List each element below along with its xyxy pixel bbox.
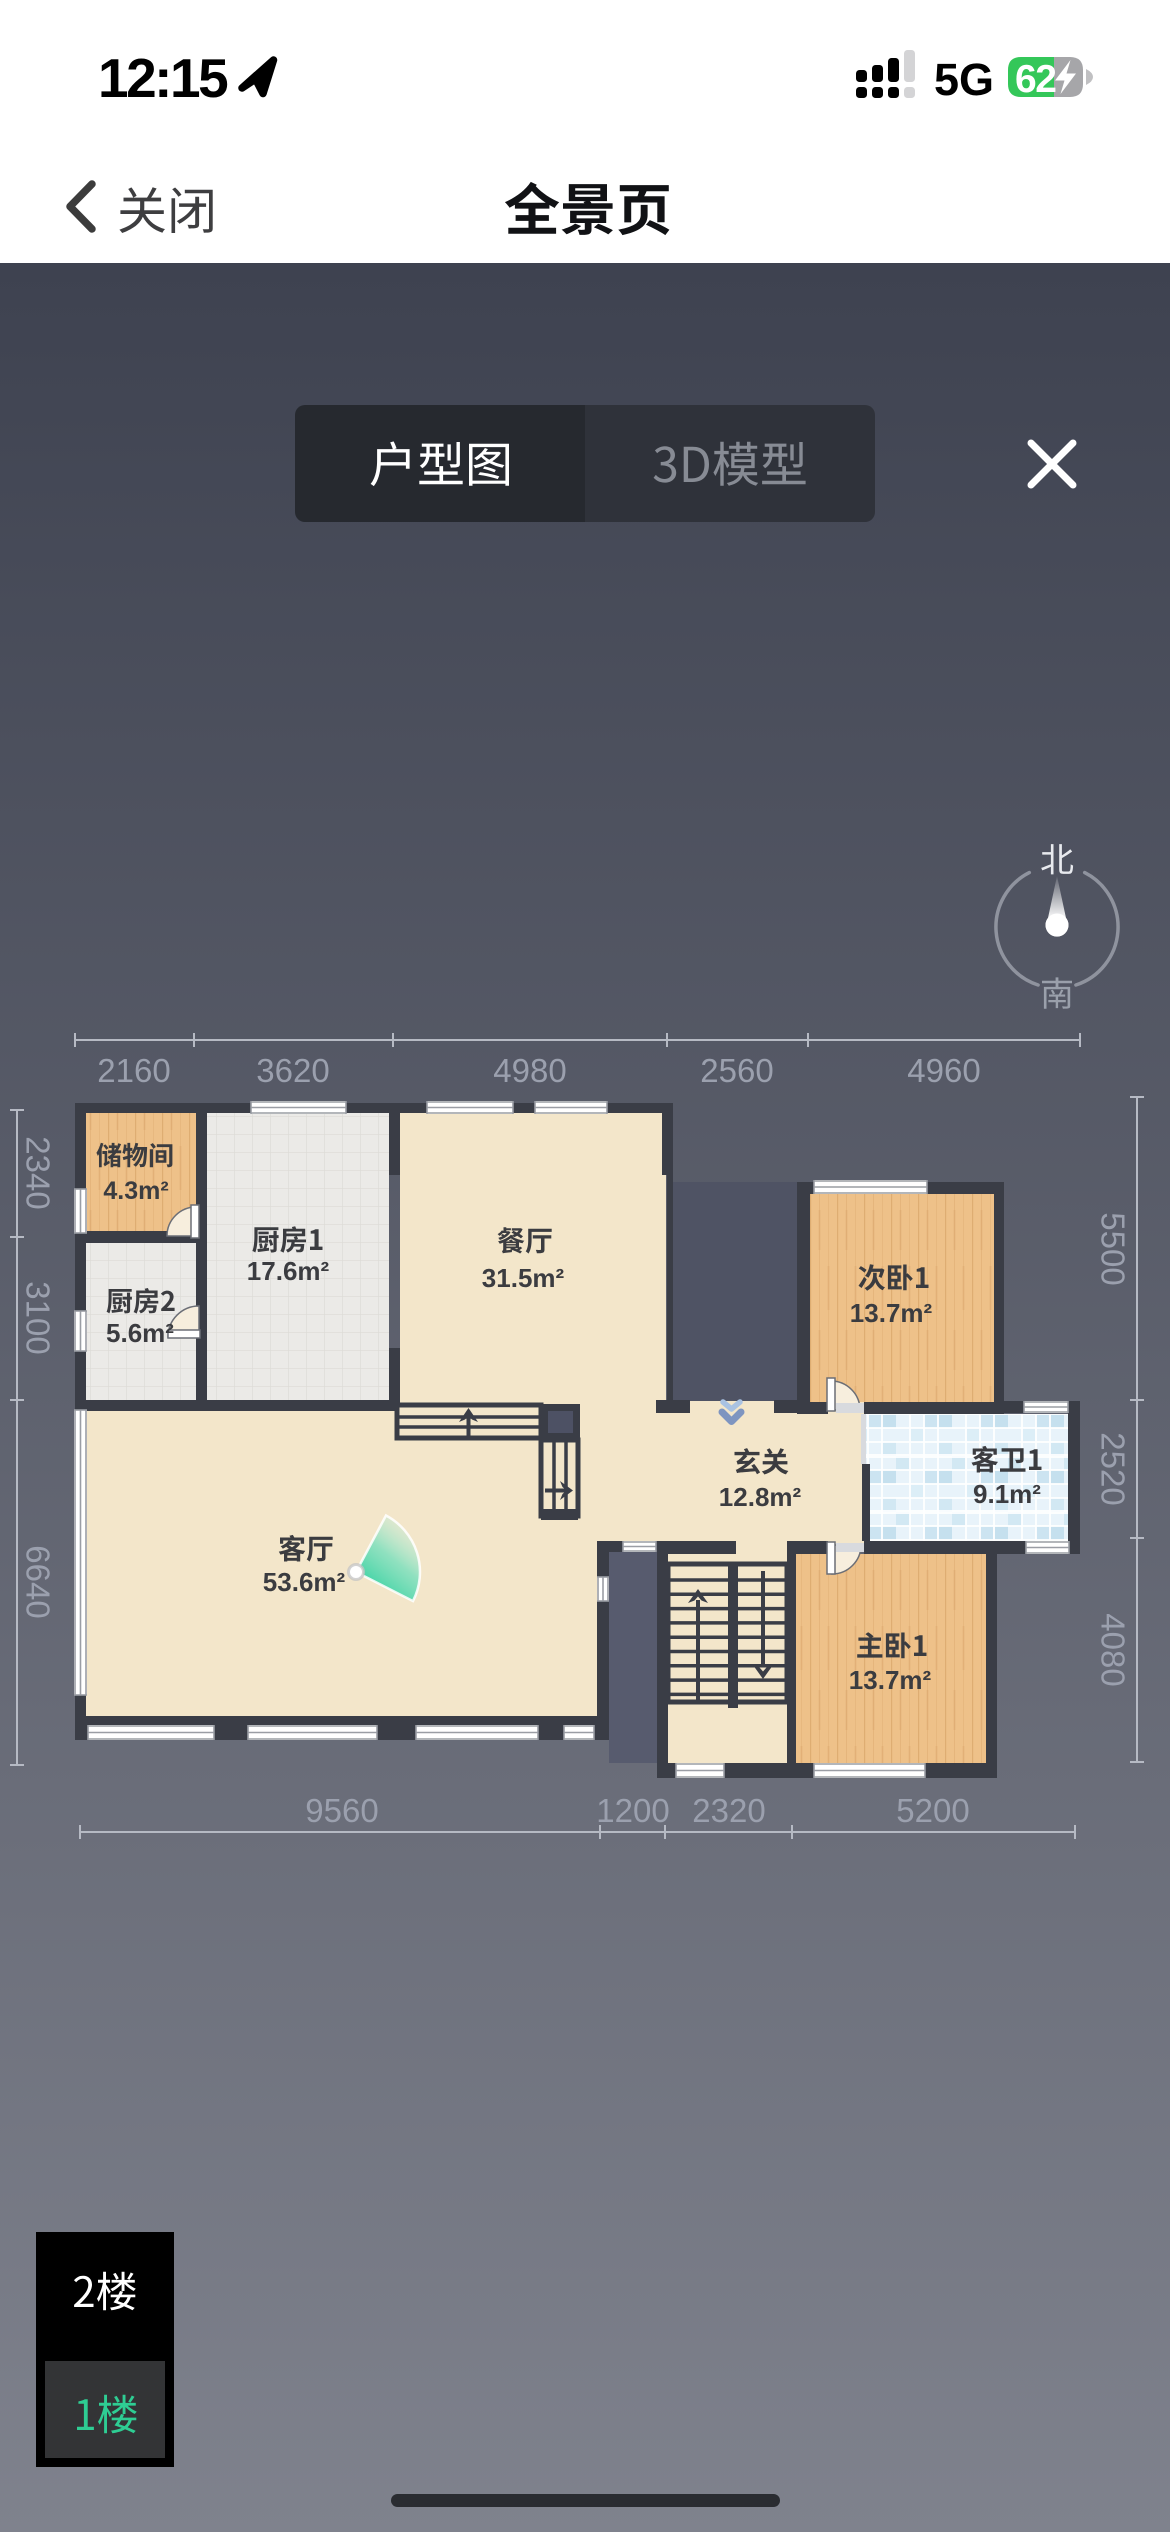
svg-text:13.7m²: 13.7m²	[849, 1665, 932, 1695]
svg-text:5200: 5200	[896, 1792, 969, 1829]
svg-text:12.8m²: 12.8m²	[719, 1482, 802, 1512]
svg-text:2320: 2320	[692, 1792, 765, 1829]
svg-text:31.5m²: 31.5m²	[482, 1263, 565, 1293]
svg-text:1200: 1200	[596, 1792, 669, 1829]
svg-text:4080: 4080	[1095, 1613, 1132, 1686]
svg-text:2560: 2560	[700, 1052, 773, 1089]
svg-text:9560: 9560	[305, 1792, 378, 1829]
svg-text:2520: 2520	[1095, 1432, 1132, 1505]
svg-text:5500: 5500	[1095, 1212, 1132, 1285]
svg-text:4960: 4960	[907, 1052, 980, 1089]
svg-text:4980: 4980	[493, 1052, 566, 1089]
svg-text:13.7m²: 13.7m²	[850, 1298, 933, 1328]
svg-text:9.1m²: 9.1m²	[973, 1479, 1041, 1509]
